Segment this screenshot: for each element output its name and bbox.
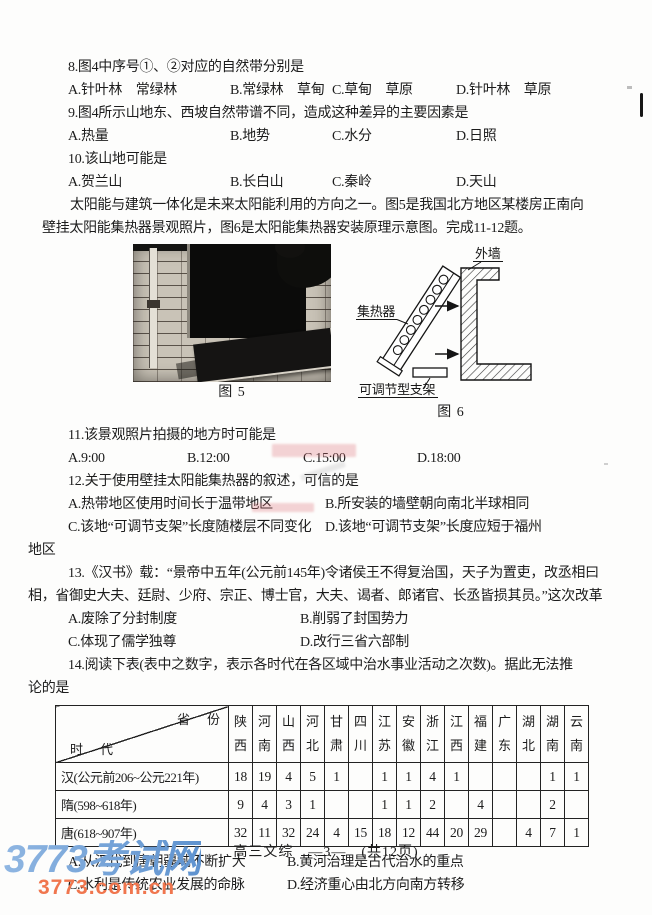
option-d: D.日照 <box>456 125 496 148</box>
count-cell: 1 <box>325 763 349 791</box>
option-c: C.水分 <box>332 125 456 148</box>
bracket-shape <box>413 368 447 377</box>
count-cell: 9 <box>229 791 253 819</box>
count-cell: 1 <box>541 763 565 791</box>
count-cell: 1 <box>301 791 325 819</box>
count-cell: 4 <box>253 791 277 819</box>
count-cell <box>349 763 373 791</box>
question-9-options: A.热量 B.地势 C.水分 D.日照 <box>42 125 614 148</box>
question-8-stem: 8.图4中序号①、②对应的自然带分别是 <box>42 56 614 79</box>
option-a: A.热量 <box>68 125 230 148</box>
figure-6-caption: 图 6 <box>437 404 465 422</box>
option-a: A.废除了分封制度 <box>68 608 300 631</box>
count-cell: 2 <box>421 791 445 819</box>
table-header-row: 省 份 时 代 陕西河南山西河北甘肃四川江苏安徽浙江江西福建广东湖北湖南云南 <box>56 706 589 763</box>
count-cell <box>445 791 469 819</box>
figures-row: 图 5 <box>133 244 614 422</box>
option-d: D.天山 <box>456 171 496 194</box>
count-cell: 19 <box>253 763 277 791</box>
count-cell: 1 <box>397 791 421 819</box>
question-12-options-cd: C.该地“可调节支架”长度随楼层不同变化 D.该地“可调节支架”长度应短于福州 <box>42 516 614 539</box>
question-12-stem: 12.关于使用壁挂太阳能集热器的叙述，可信的是 <box>42 470 614 493</box>
province-header: 甘肃 <box>325 706 349 763</box>
figure-6-block: 外墙 集热器 可调节型支架 图 6 <box>355 244 547 422</box>
option-c: C.草甸 草原 <box>332 79 456 102</box>
question-10-stem: 10.该山地可能是 <box>42 148 614 171</box>
era-label: 隋(598~618年) <box>56 791 229 819</box>
count-cell: 2 <box>541 791 565 819</box>
count-cell <box>565 791 589 819</box>
question-12-hang-text: 地区 <box>28 539 614 562</box>
province-header: 福建 <box>469 706 493 763</box>
question-14-stem-line1: 14.阅读下表(表中之数字，表示各时代在各区域中治水事业活动之次数)。据此无法推 <box>42 654 614 677</box>
count-cell: 1 <box>565 763 589 791</box>
province-header: 河南 <box>253 706 277 763</box>
faint-red-stamp <box>252 503 314 512</box>
count-cell: 1 <box>373 763 397 791</box>
option-a: A.针叶林 常绿林 <box>68 79 230 102</box>
collector-shape <box>377 264 462 375</box>
count-cell <box>469 763 493 791</box>
province-header: 云南 <box>565 706 589 763</box>
question-8-options: A.针叶林 常绿林 B.常绿林 草甸 C.草甸 草原 D.针叶林 草原 <box>42 79 614 102</box>
bracket-label: 可调节型支架 <box>359 382 436 397</box>
scan-artifact-smudge <box>627 86 632 89</box>
option-a: A.9:00 <box>68 447 187 470</box>
count-cell <box>517 791 541 819</box>
province-header: 江西 <box>445 706 469 763</box>
province-header: 安徽 <box>397 706 421 763</box>
option-b: B.地势 <box>230 125 332 148</box>
count-cell: 4 <box>277 763 301 791</box>
wall-label: 外墙 <box>475 246 501 261</box>
province-header: 四川 <box>349 706 373 763</box>
count-cell: 18 <box>229 763 253 791</box>
option-b: B.长白山 <box>230 171 332 194</box>
count-cell: 1 <box>397 763 421 791</box>
option-d: D.18:00 <box>417 447 460 470</box>
option-b: B.削弱了封国势力 <box>300 608 408 631</box>
province-header: 山西 <box>277 706 301 763</box>
count-cell <box>349 791 373 819</box>
province-header: 江苏 <box>373 706 397 763</box>
count-cell: 1 <box>373 791 397 819</box>
question-13-options-ab: A.废除了分封制度 B.削弱了封国势力 <box>42 608 614 631</box>
corner-label-province: 省 份 <box>177 709 222 728</box>
figure-5-caption: 图 5 <box>218 384 246 402</box>
diagonal-header-cell: 省 份 时 代 <box>56 706 229 763</box>
question-14-options-cd: C.水利是传统农业发展的命脉 D.经济重心由北方向南方转移 <box>42 874 614 897</box>
province-header: 浙江 <box>421 706 445 763</box>
question-14-stem-line2: 论的是 <box>28 677 614 700</box>
table-row: 隋(598~618年)943111242 <box>56 791 589 819</box>
question-13-options-cd: C.体现了儒学独尊 D.改行三省六部制 <box>42 631 614 654</box>
count-cell <box>517 763 541 791</box>
count-cell: 3 <box>277 791 301 819</box>
option-d: D.该地“可调节支架”长度应短于福州 <box>325 516 542 539</box>
option-b: B.常绿林 草甸 <box>230 79 332 102</box>
count-cell <box>325 791 349 819</box>
solar-passage-line1: 太阳能与建筑一体化是未来太阳能利用的方向之一。图5是我国北方地区某楼房正南向 <box>42 194 614 217</box>
option-d: D.针叶林 草原 <box>456 79 551 102</box>
water-control-table: 省 份 时 代 陕西河南山西河北甘肃四川江苏安徽浙江江西福建广东湖北湖南云南 汉… <box>55 705 589 847</box>
collector-label: 集热器 <box>357 304 395 319</box>
option-a: A.贺兰山 <box>68 171 230 194</box>
question-13-stem-line2: 相，省御史大夫、廷尉、少府、宗正、博士官，大夫、谒者、郎诸官、长丞皆损其员。”这… <box>28 585 614 608</box>
province-header: 湖北 <box>517 706 541 763</box>
province-header: 广东 <box>493 706 517 763</box>
count-cell <box>493 791 517 819</box>
scan-artifact-smudge <box>604 463 608 465</box>
solar-passage-line2: 壁挂太阳能集热器景观照片，图6是太阳能集热器安装原理示意图。完成11-12题。 <box>42 217 614 240</box>
corner-label-era: 时 代 <box>70 739 115 758</box>
era-label: 汉(公元前206~公元221年) <box>56 763 229 791</box>
page-footer: 高三文综 —3— (共12页) <box>0 841 652 861</box>
faint-red-stamp <box>272 444 356 457</box>
option-b: B.所安装的墙壁朝向南北半球相同 <box>325 493 529 516</box>
option-c: C.体现了儒学独尊 <box>68 631 300 654</box>
province-header: 河北 <box>301 706 325 763</box>
table-row: 汉(公元前206~公元221年)1819451114111 <box>56 763 589 791</box>
question-12-options-ab: A.热带地区使用时间长于温带地区 B.所安装的墙壁朝向南北半球相同 <box>42 493 614 516</box>
photo-drainpipe <box>149 248 157 368</box>
province-header: 湖南 <box>541 706 565 763</box>
figure-5-block: 图 5 <box>133 244 331 402</box>
scan-artifact-mark <box>640 93 643 117</box>
solar-collector-photo <box>133 244 331 382</box>
question-9-stem: 9.图4所示山地东、西坡自然带谱不同，造成这种差异的主要因素是 <box>42 102 614 125</box>
collector-installation-diagram: 外墙 集热器 可调节型支架 <box>355 244 547 402</box>
wall-shape <box>461 268 531 380</box>
count-cell <box>493 763 517 791</box>
option-d: D.经济重心由北方向南方转移 <box>287 874 464 897</box>
province-header: 陕西 <box>229 706 253 763</box>
exam-body: 8.图4中序号①、②对应的自然带分别是 A.针叶林 常绿林 B.常绿林 草甸 C… <box>42 56 614 897</box>
option-d: D.改行三省六部制 <box>300 631 409 654</box>
question-13-stem-line1: 13.《汉书》载：“景帝中五年(公元前145年)令诸侯王不得复治国，天子为置吏，… <box>42 562 614 585</box>
count-cell: 5 <box>301 763 325 791</box>
count-cell: 4 <box>469 791 493 819</box>
option-c: C.秦岭 <box>332 171 456 194</box>
count-cell: 1 <box>445 763 469 791</box>
exam-scan-page: 8.图4中序号①、②对应的自然带分别是 A.针叶林 常绿林 B.常绿林 草甸 C… <box>0 0 652 915</box>
option-c: C.水利是传统农业发展的命脉 <box>68 874 287 897</box>
question-10-options: A.贺兰山 B.长白山 C.秦岭 D.天山 <box>42 171 614 194</box>
count-cell: 4 <box>421 763 445 791</box>
option-c: C.该地“可调节支架”长度随楼层不同变化 <box>68 516 325 539</box>
